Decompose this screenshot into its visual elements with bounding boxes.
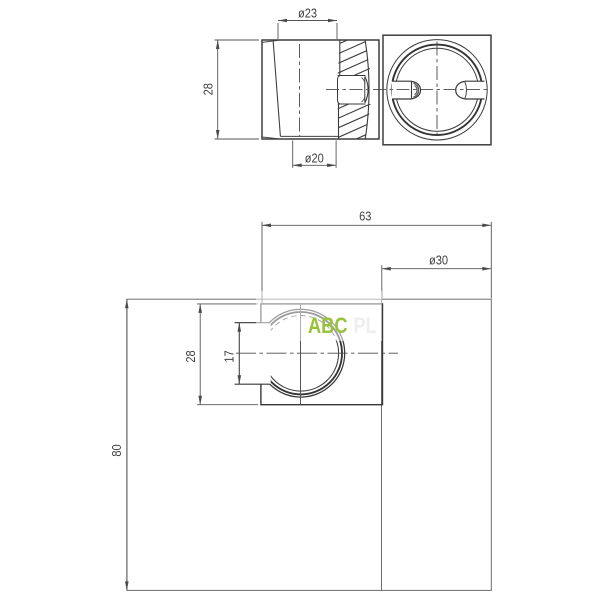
svg-text:ø30: ø30 bbox=[429, 252, 448, 267]
svg-text:28: 28 bbox=[201, 83, 216, 96]
svg-text:ABC: ABC bbox=[308, 313, 348, 338]
svg-text:ø23: ø23 bbox=[298, 5, 317, 20]
svg-text:PL: PL bbox=[354, 313, 377, 338]
svg-text:63: 63 bbox=[359, 209, 372, 224]
svg-text:80: 80 bbox=[109, 444, 124, 457]
svg-text:17: 17 bbox=[222, 350, 237, 363]
svg-text:28: 28 bbox=[183, 350, 198, 363]
svg-text:ø20: ø20 bbox=[305, 150, 324, 165]
